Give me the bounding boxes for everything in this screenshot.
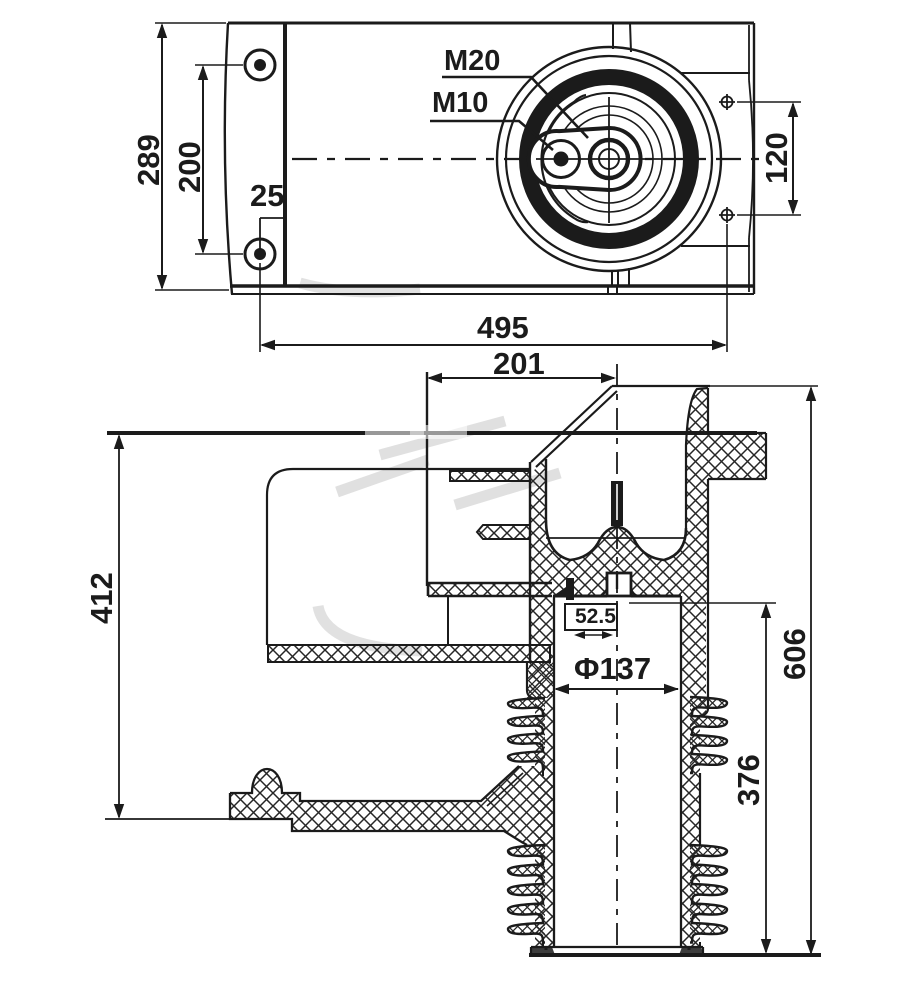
svg-text:495: 495: [477, 310, 529, 345]
svg-text:200: 200: [172, 141, 207, 193]
svg-text:289: 289: [131, 134, 166, 186]
svg-text:120: 120: [759, 132, 794, 184]
svg-text:376: 376: [731, 754, 766, 806]
svg-text:Φ137: Φ137: [574, 651, 651, 686]
svg-text:52.5: 52.5: [575, 605, 616, 628]
svg-text:412: 412: [84, 572, 119, 624]
svg-text:M10: M10: [432, 87, 488, 119]
svg-text:606: 606: [777, 628, 812, 680]
svg-text:25: 25: [250, 178, 284, 213]
svg-text:M20: M20: [444, 45, 500, 77]
svg-text:201: 201: [493, 346, 545, 381]
